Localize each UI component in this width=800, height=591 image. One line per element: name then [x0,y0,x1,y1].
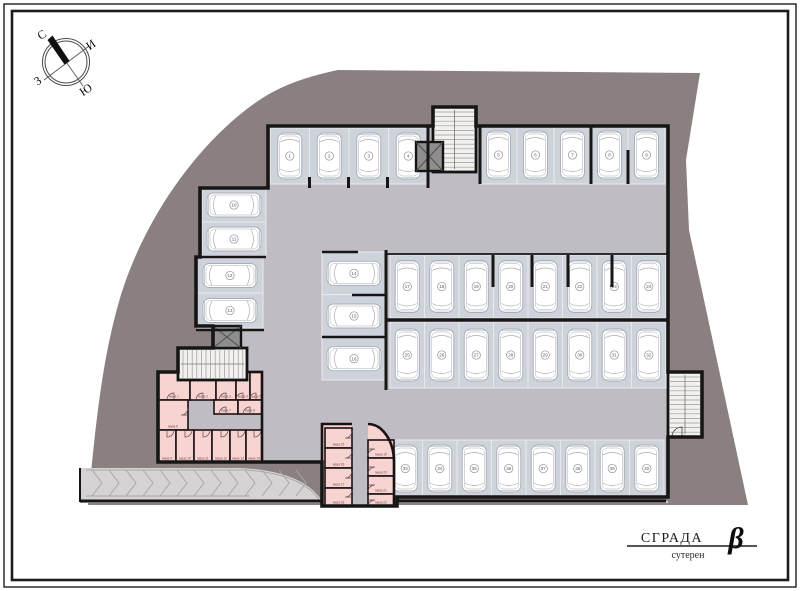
storage-room-label: маза 22 [375,501,387,505]
parking-number: 21 [543,284,548,289]
parking-number: 12 [228,273,233,278]
parking-number: 35 [472,466,477,471]
compass-rose: С И З Ю [31,27,98,99]
parking-number: 11 [232,237,237,242]
storage-room-label: маза 14 [248,457,260,461]
parking-number: 20 [508,284,513,289]
parking-number: 32 [646,353,651,358]
building-symbol: β [727,522,744,555]
storage-room-label: маза 12 [215,457,227,461]
floor-title: сутерен [672,550,706,561]
parking-number: 25 [405,353,410,358]
storage-corridor [188,414,262,430]
parking-number: 26 [439,353,444,358]
plan-sheet: 1234567891011121314151617181920212223242… [0,0,800,591]
parking-group-mid-column: 141516 [322,252,386,380]
storage-room-label: маза 10 [179,457,191,461]
parking-group-west-upper: 1011 [202,188,266,256]
storage-room-label: маза 20 [375,471,387,475]
storage-room-label: маза 19 [375,453,387,457]
parking-group-south-row: 3334353637383940 [388,440,664,497]
parking-number: 31 [612,353,617,358]
parking-group-top-right: 56789 [480,126,665,184]
staircase-east [668,372,702,437]
parking-number: 13 [228,308,233,313]
parking-number: 17 [405,284,410,289]
parking-number: 36 [506,466,511,471]
building-title: СГРАДА [641,531,703,546]
storage-room-label: маза 9 [162,457,172,461]
parking-number: 38 [575,466,580,471]
storage-room-label: маза 15 [333,443,345,447]
compass-label-north: С [34,27,49,43]
storage-room-label: маза 21 [375,489,387,493]
compass-label-west: З [31,73,44,88]
parking-number: 14 [352,271,357,276]
title-block: СГРАДА β сутерен [627,522,757,561]
parking-number: 30 [577,353,582,358]
parking-number: 27 [474,353,479,358]
compass-label-east: И [83,36,98,53]
parking-number: 22 [577,284,582,289]
parking-number: 37 [541,466,546,471]
garage-door-jamb [308,177,311,188]
parking-group-center-north: 1718192021222324 [390,255,666,318]
compass-label-south: Ю [77,80,95,99]
parking-number: 19 [474,284,479,289]
garage-door-jamb [386,177,389,188]
parking-group-west-lower: 1213 [197,258,263,328]
parking-number: 24 [646,284,651,289]
parking-number: 29 [543,353,548,358]
storage-room-label: маза 17 [333,483,345,487]
storage-corridor [352,422,368,506]
parking-number: 16 [352,356,357,361]
parking-number: 28 [508,353,513,358]
storage-block-west: маза 1маза 2маза 3маза 4маза 5маза 6маза… [158,372,262,462]
parking-number: 18 [439,284,444,289]
parking-number: 40 [644,466,649,471]
parking-group-center-south: 2526272829303132 [390,322,666,388]
storage-room-label: маза 11 [197,457,209,461]
garage-door-jamb [347,177,350,188]
parking-number: 10 [232,203,237,208]
parking-number: 39 [610,466,615,471]
parking-number: 33 [403,466,408,471]
floor-plan-svg: 1234567891011121314151617181920212223242… [0,0,800,591]
storage-room-label: маза 18 [333,501,345,505]
storage-room-label: маза 13 [232,457,244,461]
parking-number: 15 [352,314,357,319]
staircase-west [178,348,247,380]
parking-number: 34 [437,466,442,471]
storage-room-label: маза 6 [168,425,178,429]
storage-room-label: маза 16 [333,463,345,467]
parking-group-top-left: 1234 [270,128,428,184]
storage-block-south: маза 15маза 16маза 17маза 18маза 19маза … [322,422,394,507]
